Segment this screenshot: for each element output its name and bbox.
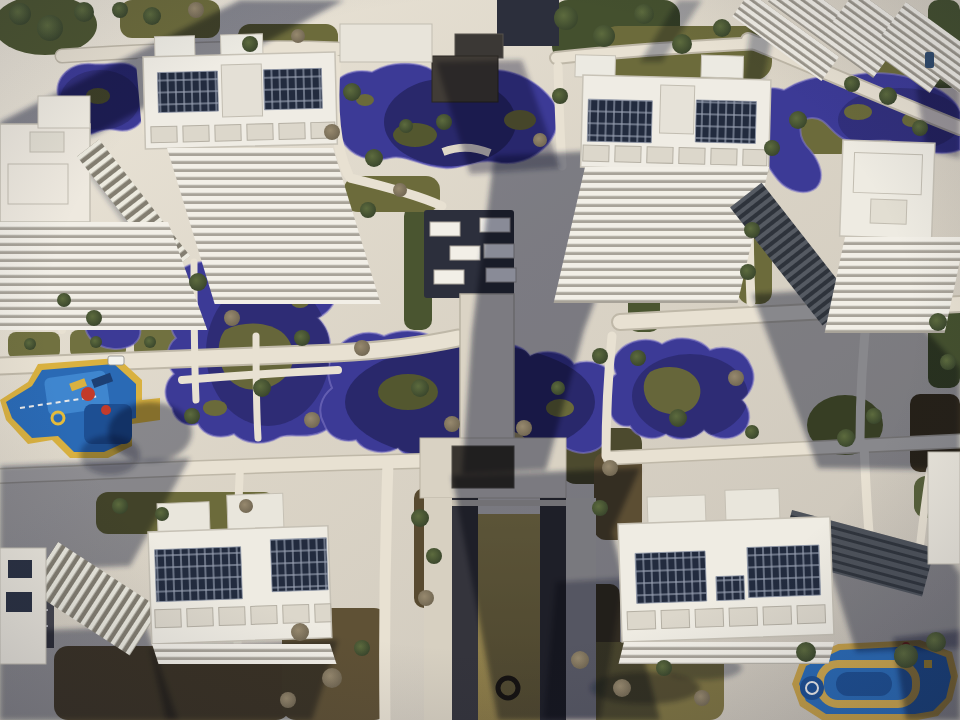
photo-vignette — [0, 0, 960, 720]
aerial-photo — [0, 0, 960, 720]
